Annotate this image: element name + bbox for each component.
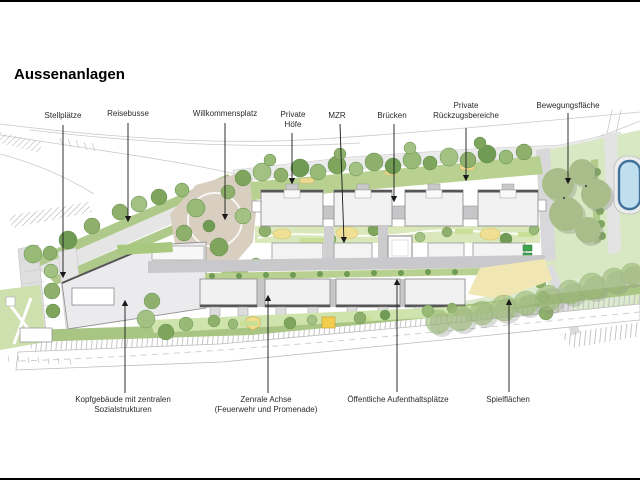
label-bewegungsflaeche: Bewegungsfläche [523,101,613,111]
label-private-hoefe: PrivateHöfe [263,110,323,131]
context-hatch-corner [0,132,42,153]
label-kopfgebaeude: Kopfgebäude mit zentralenSozialstrukture… [48,395,198,416]
site-plan-page: Aussenanlagen Stellplätze Reisebusse Wil… [0,0,640,480]
page-title: Aussenanlagen [14,66,125,83]
label-mzr: MZR [317,111,357,121]
label-bruecken: Brücken [362,111,422,121]
label-reisebusse: Reisebusse [83,109,173,119]
top-row-buildings [252,184,546,226]
carport-canopy [20,328,52,342]
label-oeffentliche-aufenthaltsplaetze: Öffentliche Aufenthaltsplätze [328,395,468,405]
west-hatch-stalls [8,202,92,228]
label-spielflaechen: Spielflächen [468,395,548,405]
label-private-rueckzugsbereiche: PrivateRückzugsbereiche [416,101,516,122]
label-willkommensplatz: Willkommensplatz [180,109,270,119]
label-zentrale-achse: Zenrale Achse(Feuerwehr und Promenade) [196,395,336,416]
pool [614,156,640,214]
